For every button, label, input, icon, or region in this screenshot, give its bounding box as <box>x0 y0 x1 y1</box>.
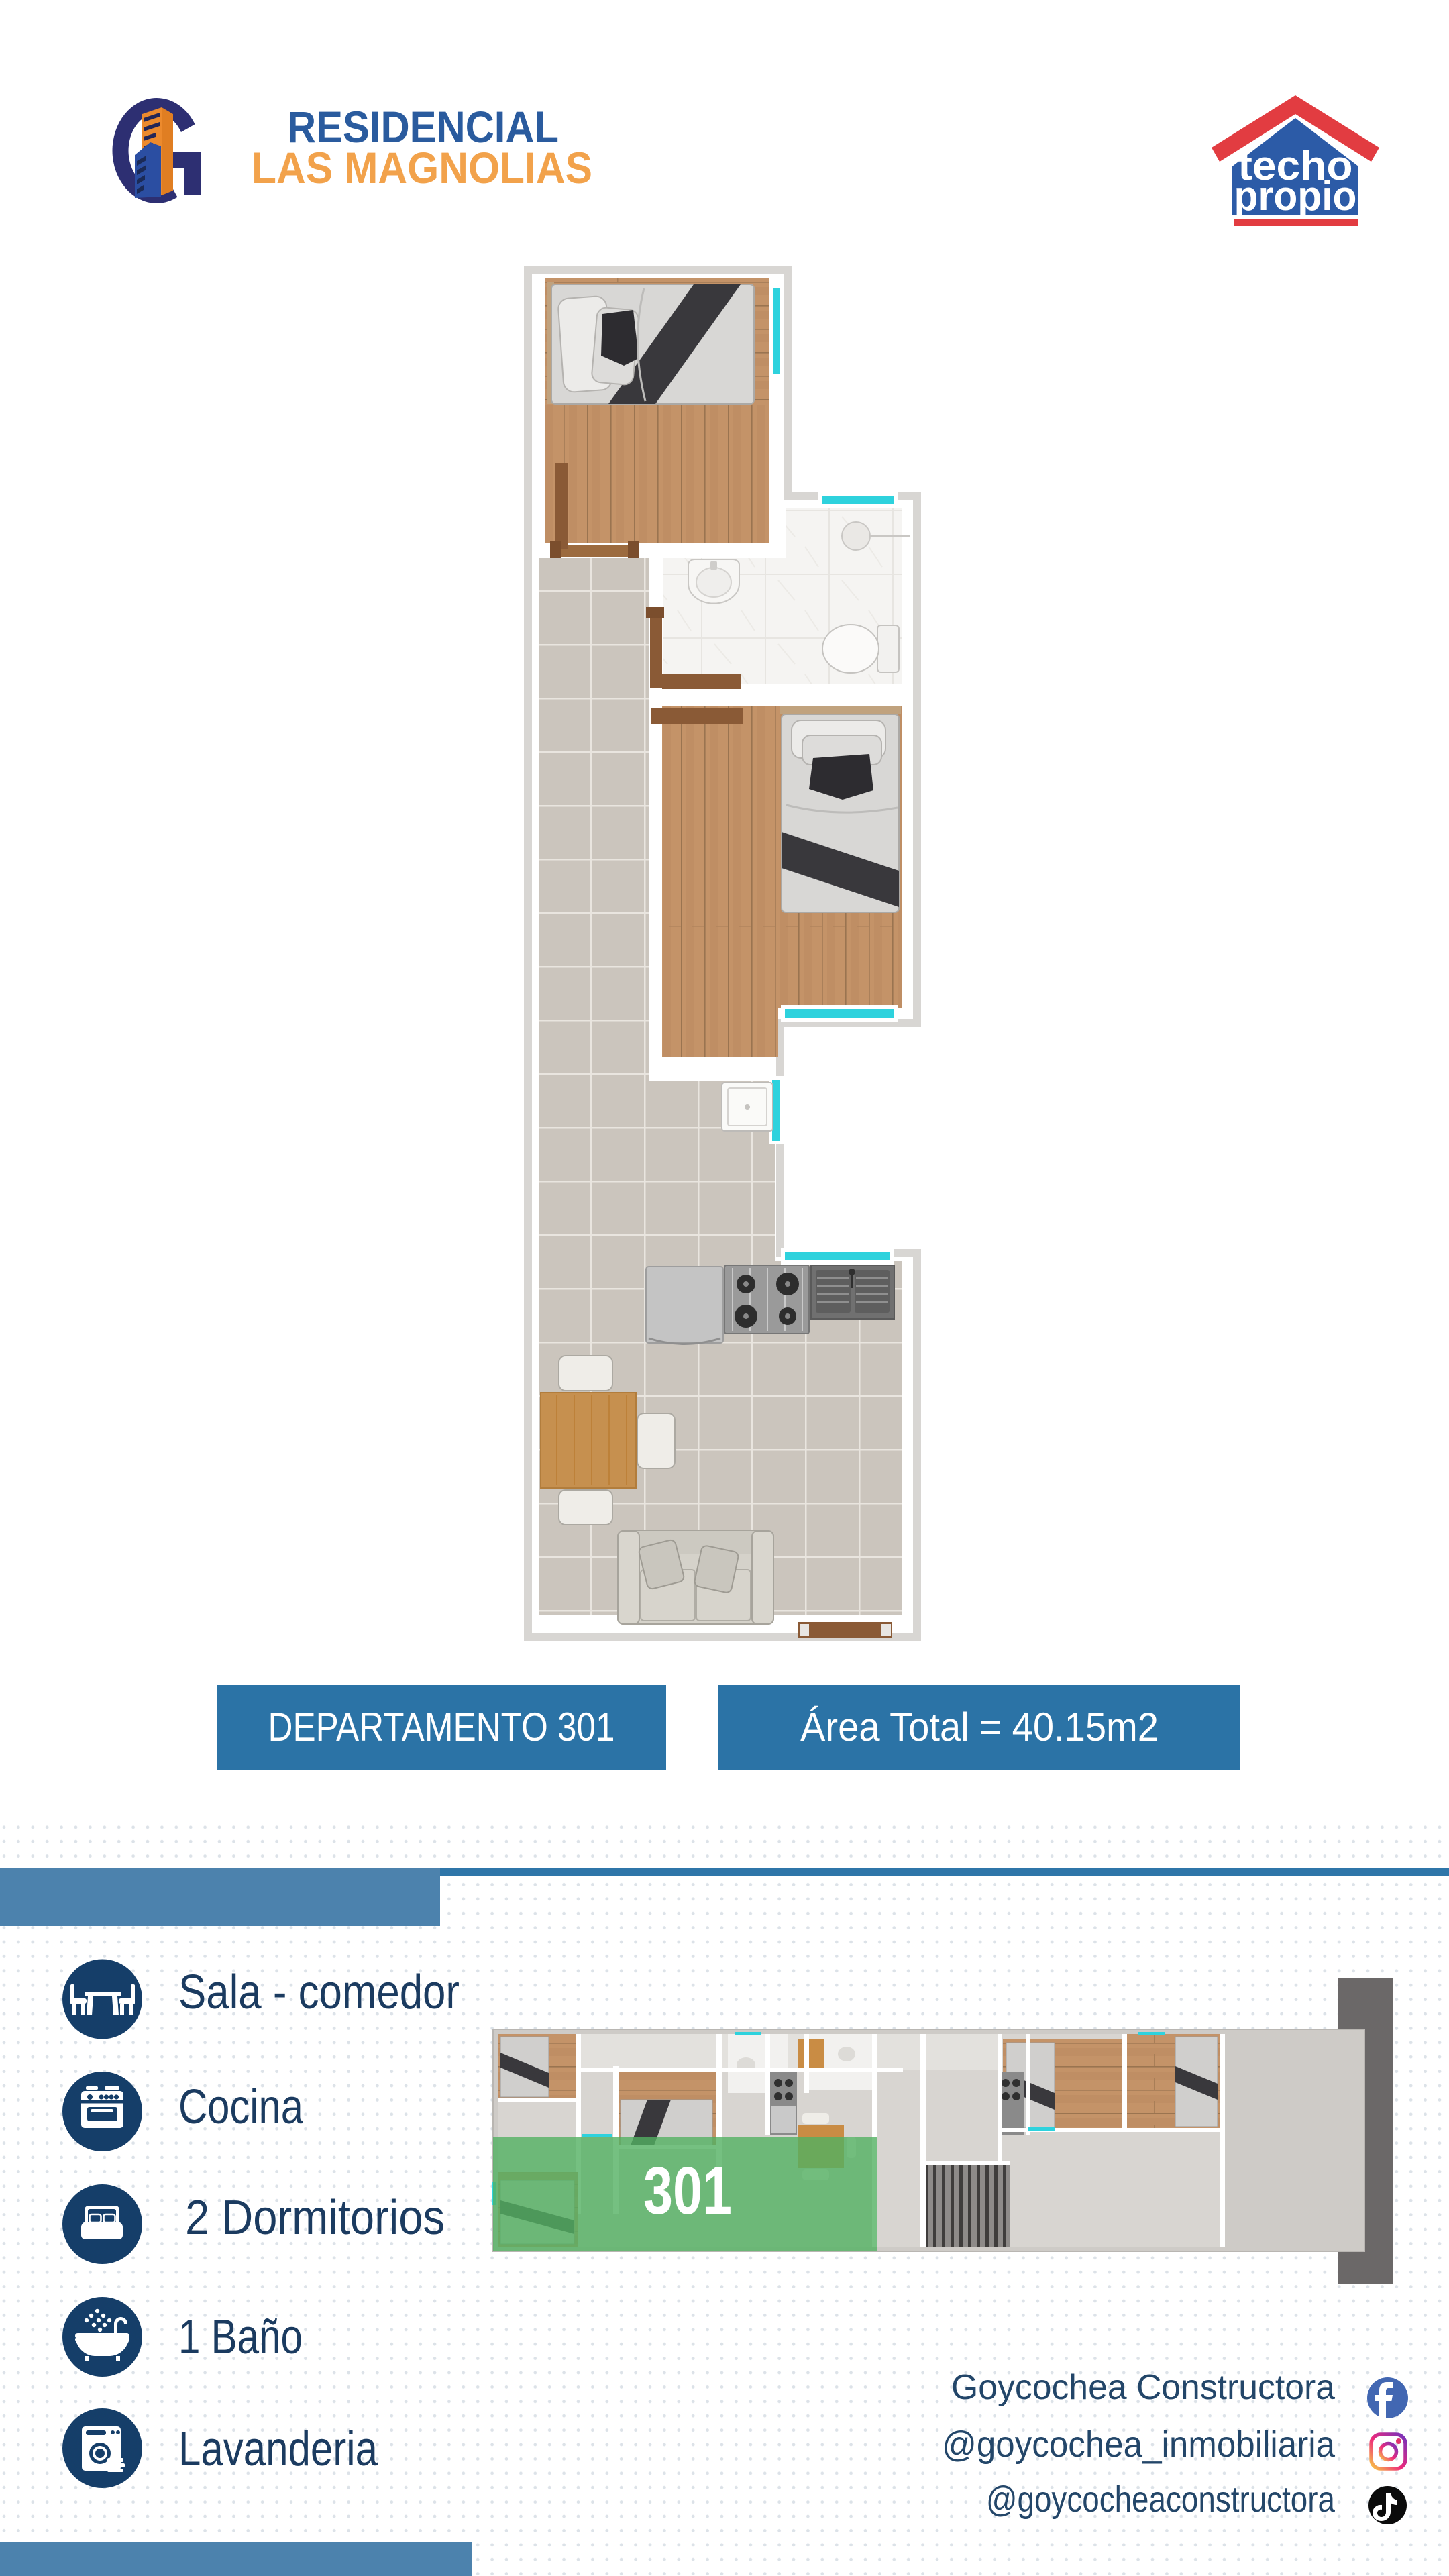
svg-text:2 Dormitorios: 2 Dormitorios <box>185 2191 445 2245</box>
svg-text:Goycochea Constructora: Goycochea Constructora <box>951 2368 1335 2407</box>
svg-text:@goycochea_inmobiliaria: @goycochea_inmobiliaria <box>942 2424 1336 2465</box>
svg-text:Lavanderia: Lavanderia <box>178 2422 378 2476</box>
svg-text:propio: propio <box>1234 173 1357 219</box>
svg-text:@goycocheaconstructora: @goycocheaconstructora <box>986 2479 1336 2520</box>
svg-text:Sala - comedor: Sala - comedor <box>178 1966 460 2019</box>
svg-text:Área Total = 40.15m2: Área Total = 40.15m2 <box>800 1705 1159 1750</box>
svg-text:301: 301 <box>643 2153 732 2229</box>
svg-text:Cocina: Cocina <box>178 2080 304 2134</box>
svg-text:1 Baño: 1 Baño <box>178 2310 303 2364</box>
svg-text:DEPARTAMENTO 301: DEPARTAMENTO 301 <box>268 1705 615 1750</box>
svg-text:LAS MAGNOLIAS: LAS MAGNOLIAS <box>252 143 592 193</box>
